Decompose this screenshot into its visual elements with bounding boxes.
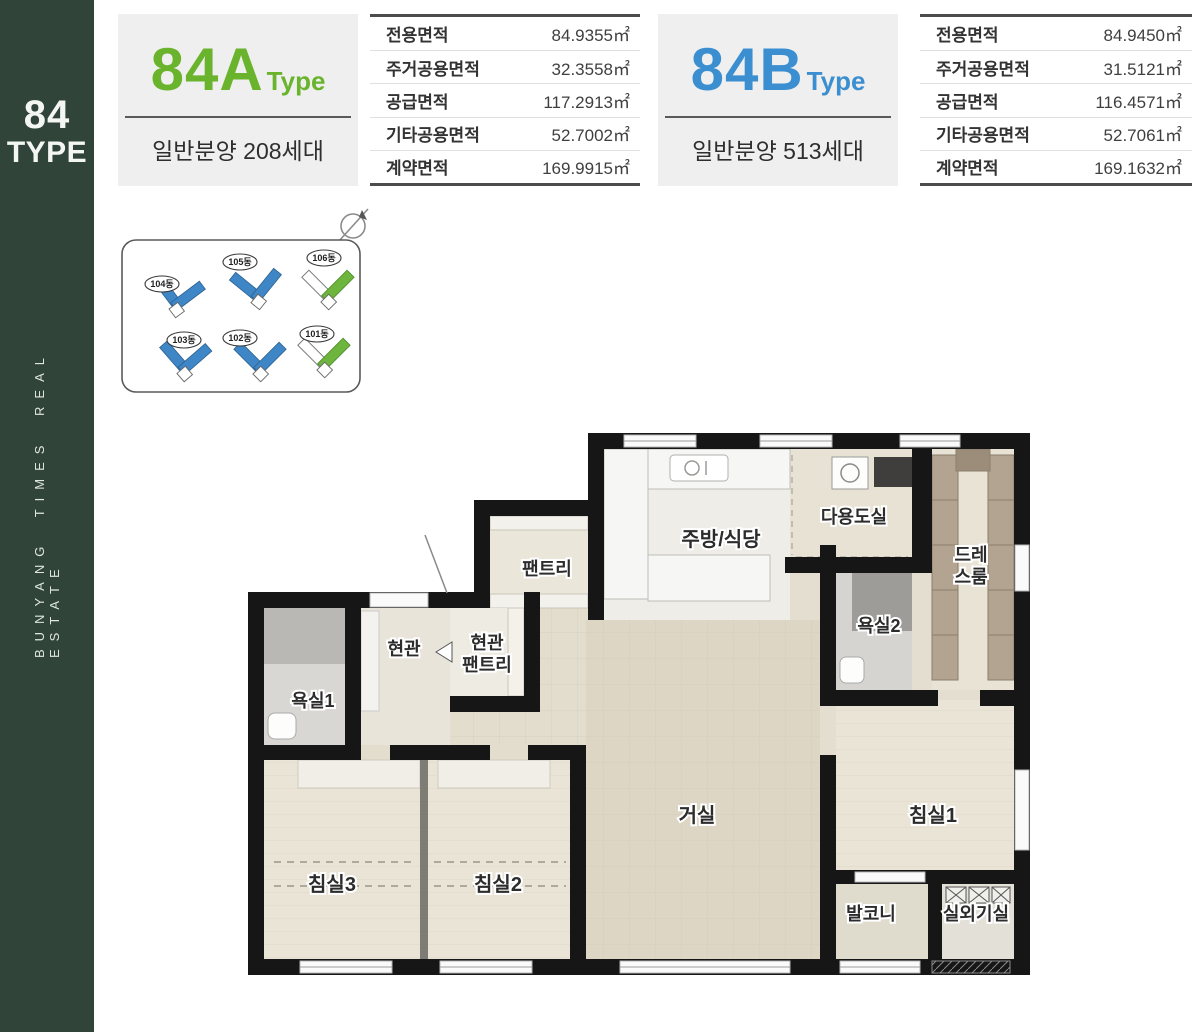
bath1-shower	[264, 608, 345, 664]
sidebar-title-84: 84	[0, 94, 94, 137]
table-row: 주거공용면적32.3558㎡	[370, 50, 640, 83]
type-b-area-table: 전용면적84.9450㎡ 주거공용면적31.5121㎡ 공급면적116.4571…	[920, 14, 1192, 186]
label-dress-room-1: 드레	[954, 545, 987, 565]
bath1-toilet	[268, 713, 296, 739]
area-label: 전용면적	[936, 21, 999, 46]
entrance-pantry-shelf	[508, 608, 524, 696]
area-value: 169.9915㎡	[542, 154, 630, 179]
area-value: 32.3558㎡	[552, 55, 630, 80]
type-a-divider	[125, 116, 351, 118]
label-kitchen-dining: 주방/식당	[681, 528, 761, 551]
table-row: 공급면적117.2913㎡	[370, 83, 640, 116]
floor-plan: 팬트리 주방/식당 다용도실 드레 스룸 욕실2 현관 현관 팬트리 욕실1 거…	[240, 425, 1070, 1000]
svg-text:105동: 105동	[228, 257, 251, 267]
sidebar-vertical-text-wrap: BUNYANG TIMES REAL ESTATE	[0, 248, 94, 658]
type-b-name-row: 84B Type	[691, 35, 866, 104]
table-row: 전용면적84.9450㎡	[920, 17, 1192, 50]
area-value: 169.1632㎡	[1094, 154, 1182, 179]
svg-text:101동: 101동	[305, 329, 328, 339]
shoe-cabinet	[361, 611, 379, 711]
table-row: 계약면적169.1632㎡	[920, 150, 1192, 183]
svg-text:106동: 106동	[312, 253, 335, 263]
label-bed3: 침실3	[308, 873, 356, 896]
building-103-label: 103동	[167, 332, 201, 348]
area-value: 31.5121㎡	[1104, 55, 1182, 80]
type-b-suffix: Type	[807, 66, 866, 97]
svg-text:102동: 102동	[228, 333, 251, 343]
type-a-area-table: 전용면적84.9355㎡ 주거공용면적32.3558㎡ 공급면적117.2913…	[370, 14, 640, 186]
type-a-subtitle: 일반분양 208세대	[152, 132, 324, 166]
label-entrance-pantry-1: 현관	[470, 633, 504, 653]
area-label: 공급면적	[936, 88, 999, 113]
building-101-label: 101동	[300, 326, 334, 342]
area-label: 전용면적	[386, 21, 449, 46]
area-label: 주거공용면적	[386, 55, 480, 80]
label-bath2: 욕실2	[857, 616, 900, 636]
area-value: 117.2913㎡	[543, 88, 630, 113]
label-dress-room-2: 스룸	[954, 567, 987, 587]
type-a-suffix: Type	[267, 66, 326, 97]
area-value: 52.7002㎡	[552, 121, 630, 146]
washer	[832, 457, 868, 489]
pantry-shelf-top	[490, 516, 588, 530]
sidebar-vertical-text: BUNYANG TIMES REAL ESTATE	[32, 248, 62, 658]
type-b-card: 84B Type 일반분양 513세대	[658, 14, 898, 186]
area-label: 공급면적	[386, 88, 449, 113]
area-label: 계약면적	[386, 154, 449, 179]
area-label: 계약면적	[936, 154, 999, 179]
sidebar-title: 84 TYPE	[0, 94, 94, 170]
label-living: 거실	[679, 804, 716, 827]
area-value: 52.7061㎡	[1104, 121, 1182, 146]
leader-line	[425, 535, 447, 593]
type-b-name: 84B	[691, 35, 804, 104]
area-label: 기타공용면적	[386, 121, 480, 146]
label-bed1: 침실1	[909, 804, 957, 827]
building-104-label: 104동	[145, 276, 179, 292]
table-row: 공급면적116.4571㎡	[920, 83, 1192, 116]
page: 84 TYPE BUNYANG TIMES REAL ESTATE 84A Ty…	[0, 0, 1200, 1032]
label-bath1: 욕실1	[291, 691, 334, 711]
area-value: 116.4571㎡	[1095, 88, 1182, 113]
label-pantry: 팬트리	[522, 559, 572, 579]
label-entrance: 현관	[387, 639, 421, 659]
bed2-closet	[438, 760, 550, 788]
building-102-label: 102동	[223, 330, 257, 346]
bath2-toilet	[840, 657, 864, 683]
label-entrance-pantry-2: 팬트리	[462, 655, 512, 675]
utility-cabinet	[874, 457, 912, 487]
table-row: 전용면적84.9355㎡	[370, 17, 640, 50]
hatched-vent-window	[932, 961, 1010, 973]
building-106-label: 106동	[307, 250, 341, 266]
table-row: 주거공용면적31.5121㎡	[920, 50, 1192, 83]
svg-text:103동: 103동	[172, 335, 195, 345]
type-b-divider	[665, 116, 891, 118]
building-105-label: 105동	[223, 254, 257, 270]
area-label: 주거공용면적	[936, 55, 1030, 80]
label-bed2: 침실2	[474, 873, 522, 896]
compass-icon	[339, 209, 368, 241]
sidebar: 84 TYPE BUNYANG TIMES REAL ESTATE	[0, 0, 94, 1032]
bed3-closet	[298, 760, 420, 788]
type-a-name: 84A	[151, 35, 264, 104]
type-a-name-row: 84A Type	[151, 35, 326, 104]
svg-text:104동: 104동	[150, 279, 173, 289]
outdoor-unit-louvers	[946, 887, 1010, 903]
sidebar-title-type: TYPE	[0, 137, 94, 169]
table-row: 계약면적169.9915㎡	[370, 150, 640, 183]
type-a-card: 84A Type 일반분양 208세대	[118, 14, 358, 186]
area-value: 84.9355㎡	[552, 21, 630, 46]
label-utility: 다용도실	[821, 507, 887, 527]
label-balcony: 발코니	[846, 904, 896, 924]
label-outdoor-unit: 실외기실	[943, 904, 1009, 924]
site-map: 104동 105동 106동 103동	[118, 200, 372, 398]
table-row: 기타공용면적52.7002㎡	[370, 117, 640, 150]
type-b-subtitle: 일반분양 513세대	[692, 132, 864, 166]
area-label: 기타공용면적	[936, 121, 1030, 146]
area-value: 84.9450㎡	[1104, 21, 1182, 46]
table-row: 기타공용면적52.7061㎡	[920, 117, 1192, 150]
